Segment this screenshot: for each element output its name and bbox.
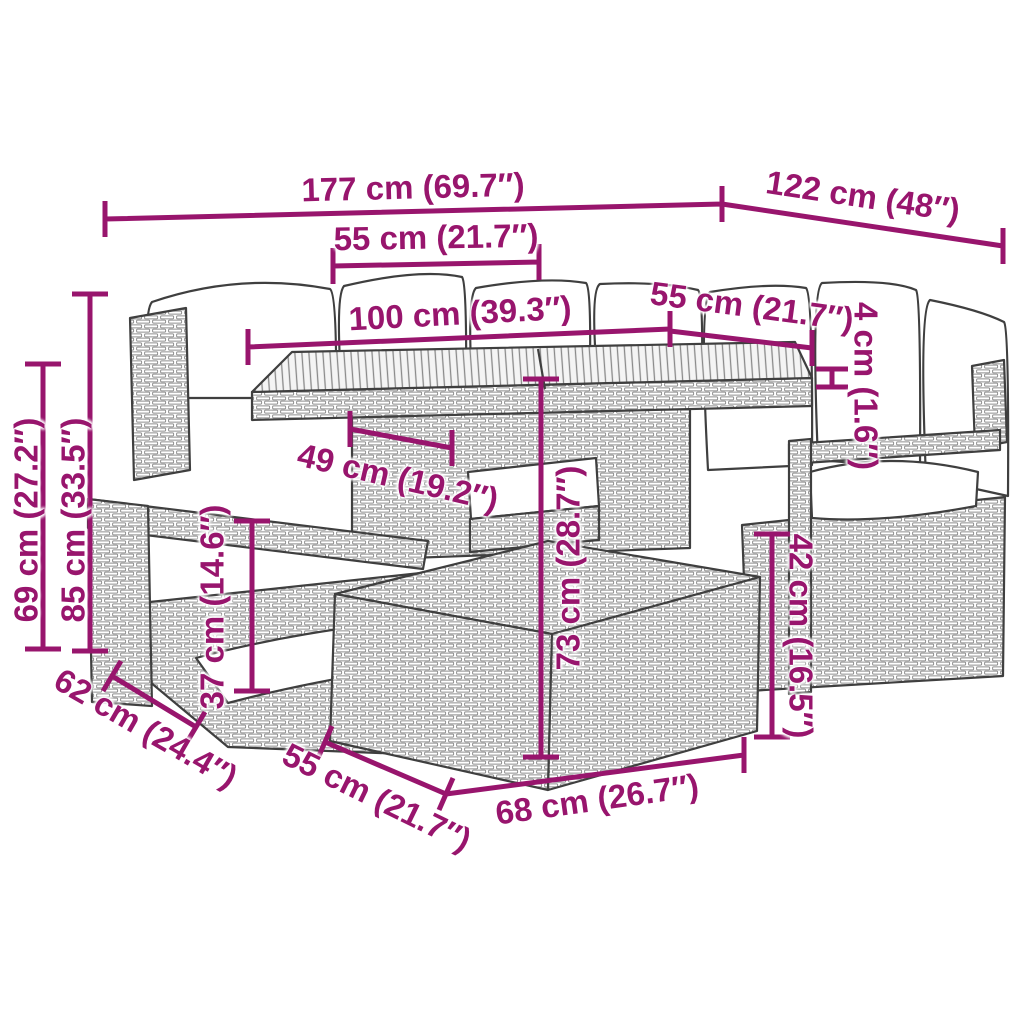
dim-label-tabletop-thickness: 4 cm (1.6″) [850,302,883,470]
dim-label-back-height: 85 cm (33.5″) [57,418,90,623]
dim-label-arm-height: 69 cm (27.2″) [10,418,43,623]
dim-label-total-width: 177 cm (69.7″) [301,168,525,207]
left-sofa-back-post [130,308,190,480]
dim-label-seat-width-back: 55 cm (21.7″) [333,219,538,256]
furniture-and-dims-canvas [0,0,1024,1024]
dim-label-table-height: 73 cm (28.7″) [552,466,585,671]
dimension-diagram: 177 cm (69.7″) 122 cm (48″) 55 cm (21.7″… [0,0,1024,1024]
center-ottoman [330,541,760,790]
dim-label-ottoman-height: 37 cm (14.6″) [196,505,229,710]
dim-label-seat-height: 42 cm (16.5″) [785,534,818,739]
right-seat-cushion [810,461,978,520]
right-sofa-base [742,497,1005,691]
left-armrest-post [88,499,152,706]
